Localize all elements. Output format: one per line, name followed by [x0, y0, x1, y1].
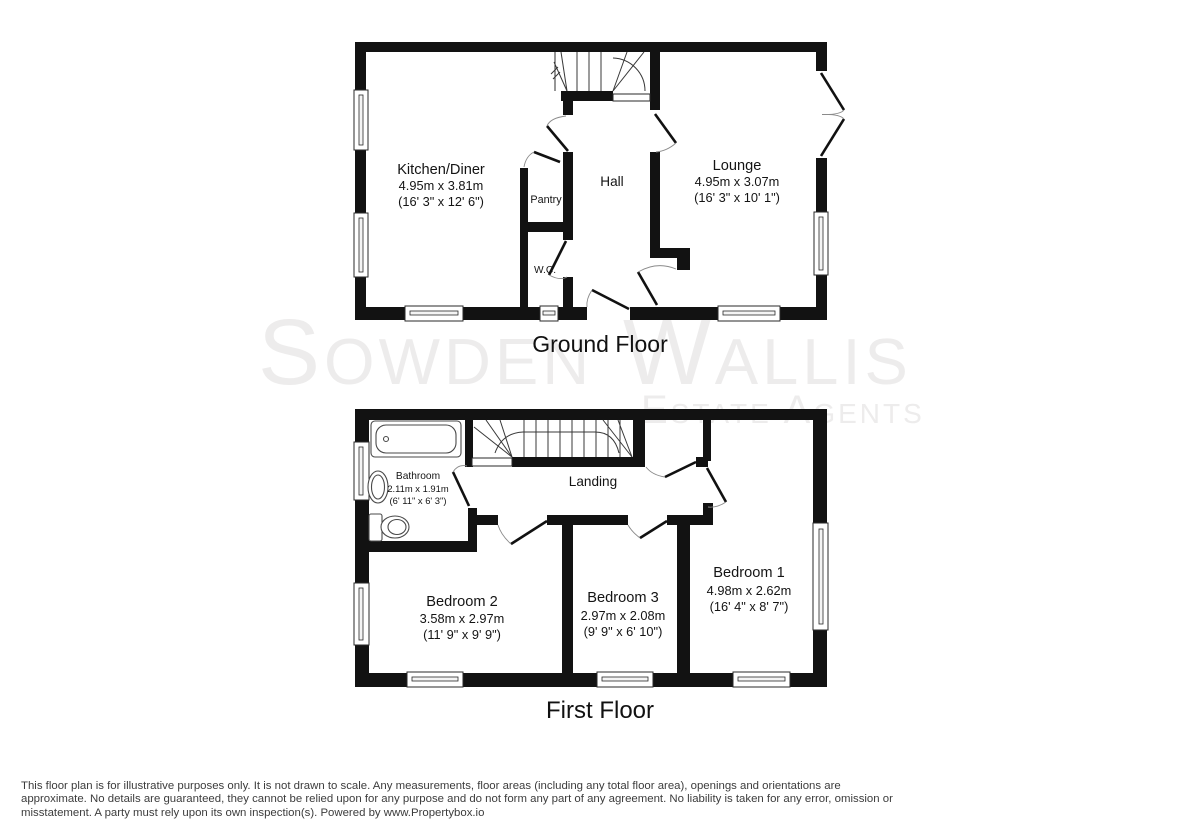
bedroom1-metric: 4.98m x 2.62m [707, 583, 792, 598]
first-floor-title: First Floor [0, 697, 1200, 725]
lounge-imperial: (16' 3" x 10' 1") [694, 190, 780, 205]
bedroom1-label: Bedroom 1 [713, 565, 784, 581]
disclaimer-line-2: approximate. No details are guaranteed, … [21, 793, 1186, 806]
bedroom1-window-bottom [733, 672, 790, 687]
wc-window-bottom [540, 306, 558, 321]
bathroom-label: Bathroom [396, 471, 440, 482]
bedroom2-metric: 3.58m x 2.97m [420, 611, 505, 626]
disclaimer-line-3: misstatement. A party must rely upon its… [21, 807, 1186, 820]
bedroom1-imperial: (16' 4" x 8' 7") [710, 599, 789, 614]
bathroom-door [453, 466, 469, 506]
pantry-label: Pantry [530, 194, 562, 206]
bathroom-window-left [354, 442, 369, 500]
ground-floor-title: Ground Floor [0, 331, 1200, 358]
bedroom3-imperial: (9' 9" x 6' 10") [584, 624, 663, 639]
first-room-labels: Bathroom 2.11m x 1.91m (6' 11" x 6' 3") … [387, 471, 791, 642]
pantry-door [524, 152, 560, 167]
bedroom1-door [707, 468, 726, 507]
kitchen-door [547, 116, 568, 151]
cupboard-door [646, 462, 696, 477]
bedroom3-door [628, 521, 667, 538]
bedroom2-label: Bedroom 2 [426, 594, 497, 610]
bedroom3-window-bottom [597, 672, 653, 687]
bedroom1-window-right [813, 523, 828, 630]
bathtub-icon [371, 421, 461, 457]
wc-label: W.C. [534, 265, 556, 276]
kitchen-imperial: (16' 3" x 12' 6") [398, 194, 484, 209]
kitchen-window-left-upper [354, 90, 368, 150]
lounge-label: Lounge [713, 158, 762, 174]
toilet-icon [369, 514, 409, 541]
lounge-window-bottom [718, 306, 780, 321]
bathroom-imperial: (6' 11" x 6' 3") [390, 495, 447, 506]
kitchen-metric: 4.95m x 3.81m [399, 178, 484, 193]
front-door [587, 290, 629, 309]
first-floor-plan: Bathroom 2.11m x 1.91m (6' 11" x 6' 3") … [355, 405, 827, 690]
hall-label: Hall [600, 174, 623, 189]
lounge-door-upper [655, 114, 676, 152]
lounge-door-lower [638, 266, 676, 305]
floorplan-page: { "colors": { "background": "#ffffff", "… [0, 0, 1200, 839]
lounge-metric: 4.95m x 3.07m [695, 174, 780, 189]
lounge-window-right [814, 212, 828, 275]
landing-label: Landing [569, 474, 617, 489]
kitchen-label: Kitchen/Diner [397, 162, 485, 178]
bedroom2-imperial: (11' 9" x 9' 9") [423, 627, 501, 642]
bedroom2-window-bottom [407, 672, 463, 687]
french-doors-lounge [816, 71, 844, 158]
disclaimer: This floor plan is for illustrative purp… [21, 780, 1186, 820]
bedroom3-label: Bedroom 3 [587, 590, 658, 606]
sink-icon [368, 471, 388, 503]
bedroom2-door [498, 521, 547, 544]
kitchen-window-bottom [405, 306, 463, 321]
kitchen-window-left-lower [354, 213, 368, 277]
disclaimer-line-1: This floor plan is for illustrative purp… [21, 780, 1186, 793]
bedroom2-window-left [354, 583, 369, 645]
ground-room-labels: Kitchen/Diner 4.95m x 3.81m (16' 3" x 12… [397, 158, 780, 276]
ground-floor-plan: Kitchen/Diner 4.95m x 3.81m (16' 3" x 12… [355, 40, 845, 322]
bathroom-metric: 2.11m x 1.91m [387, 483, 449, 494]
bedroom3-metric: 2.97m x 2.08m [581, 608, 666, 623]
